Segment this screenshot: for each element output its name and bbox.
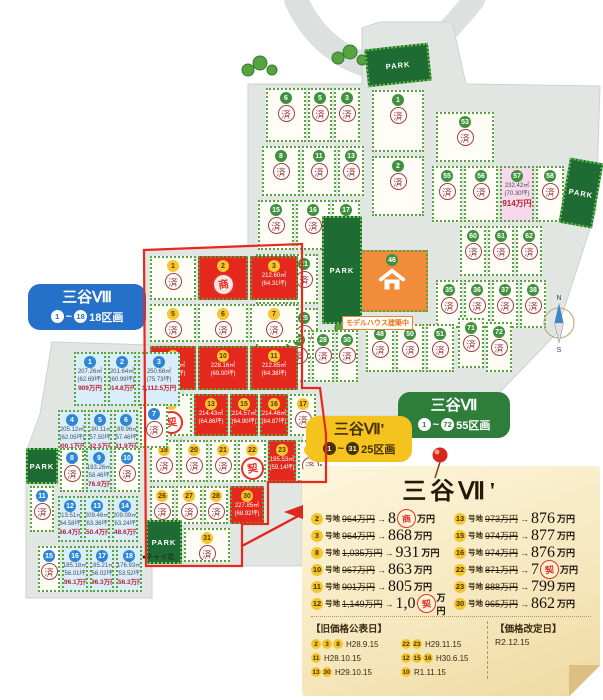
arrow-glyph: → <box>520 548 529 558</box>
lot-7-15: 15済 <box>258 200 294 250</box>
lot-number-badge: 23 <box>276 444 288 456</box>
lot-7-48: 48済 <box>366 324 394 372</box>
pub-dates-col2: 2223H29.11.15121516H30.6.1510R1.11.15 <box>401 637 487 679</box>
lot-area-text: 185.18㎡ <box>63 563 87 570</box>
lot-area-text: 214.46㎡ <box>262 411 286 418</box>
sold-marker: 済 <box>165 273 182 290</box>
new-price-unit: 万円 <box>422 546 440 559</box>
lot-7-50: 50済 <box>396 324 424 372</box>
lot-7-37: 37済 <box>492 280 518 328</box>
park-area: PARK <box>26 448 58 484</box>
range-separator: ~ <box>338 443 344 455</box>
old-price: 973万円 <box>485 512 518 525</box>
range-end-badge: 18 <box>74 310 87 323</box>
lot-area-text: (64.87坪) <box>262 419 287 426</box>
sold-marker: 済 <box>266 321 283 338</box>
lot-number-badge: 16 <box>69 550 81 562</box>
lot-7d-6: 6済 <box>198 304 248 342</box>
label-mitani7dash-title: 三谷Ⅶ' <box>314 421 404 440</box>
lot-8-13: 13209.46㎡(63.36坪)950.4万円 <box>84 496 110 542</box>
range-start-badge: 1 <box>418 418 431 431</box>
label-mitani7dash: 三谷Ⅶ' 1 ~ 31 25区画 <box>306 416 412 462</box>
lot-7-46: 46 <box>356 250 428 312</box>
lot-7d-3: 3212.60㎡(64.31坪) <box>250 256 298 300</box>
lot-number-badge: 11 <box>36 490 48 502</box>
sold-marker: 済 <box>165 321 182 338</box>
lot-number-badge: 35 <box>443 284 455 296</box>
new-price: 1,0 <box>396 596 416 612</box>
sold-marker: 済 <box>542 183 559 200</box>
range-start-badge: 1 <box>51 310 64 323</box>
lot-8-2: 2201.64㎡(60.99坪)914.8万円 <box>108 352 136 406</box>
lot-unit-label: 号地 <box>468 513 483 524</box>
lot-number-badge: 12 <box>311 598 323 610</box>
compass-icon: N S <box>544 295 574 354</box>
range-start-badge: 1 <box>323 442 336 455</box>
lot-7-56: 56済 <box>464 166 498 222</box>
pub-date-group: 2223H29.11.15 <box>401 637 487 651</box>
lot-7-28: 28済 <box>312 330 334 382</box>
lot-unit-label: 号地 <box>468 564 483 575</box>
lot-number-badge: 58 <box>544 170 556 182</box>
lot-number-badge: 13 <box>205 398 217 410</box>
sold-marker: 済 <box>343 163 360 180</box>
contract-stamp: 契 <box>239 455 266 482</box>
lot-number-badge: 10 <box>217 350 229 362</box>
lot-area-text: 214.43㎡ <box>199 411 223 418</box>
price-revision-row: 3号地964万円→868万円 <box>311 527 450 544</box>
contract-stamp: 契 <box>415 593 436 614</box>
lot-8-12: 12213.51㎡(64.58坪)966.4万円 <box>58 496 82 542</box>
arrow-glyph: → <box>520 565 529 575</box>
sold-marker: 済 <box>34 503 51 520</box>
new-price-unit: 万円 <box>414 529 432 542</box>
lot-price: 914万円 <box>502 199 531 209</box>
old-price-dates-section: 【旧価格公表日】 238H28.9.1511H28.10.151330H29.1… <box>311 621 487 679</box>
lot-number-badge: 15 <box>412 653 422 663</box>
arrow-glyph: → <box>520 531 529 541</box>
park-area: PARK <box>559 158 603 229</box>
lot-number-badge: 37 <box>499 284 511 296</box>
lot-number-badge: 3 <box>341 92 353 104</box>
lot-number-badge: 46 <box>386 254 398 266</box>
lot-number-badge: 25 <box>298 312 310 324</box>
sold-marker: 済 <box>278 105 295 122</box>
sold-marker: 済 <box>315 347 332 364</box>
sold-marker: 済 <box>64 465 81 482</box>
lot-number-badge: 15 <box>238 398 250 410</box>
price-rows-right: 13号地973万円→876万円15号地974万円→877万円16号地974万円→… <box>454 510 593 612</box>
pub-date-group: 10R1.11.15 <box>401 665 487 679</box>
lot-number-badge: 2 <box>311 639 321 649</box>
lot-area-text: (64.31坪) <box>261 281 286 288</box>
sold-marker: 済 <box>463 335 480 352</box>
old-price: 974万円 <box>485 529 518 542</box>
label-mitani8: 三谷Ⅷ 1 ~ 18 18区画 <box>28 284 146 330</box>
lot-7-51: 51済 <box>426 324 454 372</box>
lot-number-badge: 57 <box>511 170 523 182</box>
lot-area-text: (63.36坪) <box>85 521 110 528</box>
lot-7d-7: 7済 <box>250 304 298 342</box>
sold-marker: 済 <box>186 457 203 474</box>
lot-7d-30: 30227.85㎡(68.92坪) <box>230 486 264 524</box>
lot-number-badge: 28 <box>210 490 222 502</box>
lot-number-badge: 5 <box>167 308 179 320</box>
pub-date-value: H29.10.15 <box>335 668 372 677</box>
lot-8-8: 8済 <box>60 448 84 492</box>
lot-number-badge: 17 <box>340 204 352 216</box>
sold-marker: 済 <box>525 297 542 314</box>
lot-number-badge: 17 <box>96 550 108 562</box>
lot-7-38: 38済 <box>520 280 546 328</box>
price-revision-row: 11号地901万円→805万円 <box>311 578 450 595</box>
pub-date-value: H28.10.15 <box>324 654 361 663</box>
lot-number-badge: 2 <box>217 260 229 272</box>
lot-number-badge: 3 <box>268 260 280 272</box>
new-price: 931 <box>396 545 420 561</box>
pub-date-value: R1.11.15 <box>414 668 446 677</box>
lot-area-text: 212.85㎡ <box>262 363 286 370</box>
lot-7-11: 11済 <box>302 146 336 196</box>
lot-number-badge: 11 <box>311 653 321 663</box>
arrow-glyph: → <box>377 531 386 541</box>
lot-number-badge: 38 <box>527 284 539 296</box>
lot-area-text: (64.90坪) <box>232 419 257 426</box>
sold-marker: 済 <box>493 243 510 260</box>
lot-number-badge: 28 <box>317 334 329 346</box>
lot-number-badge: 31 <box>201 532 213 544</box>
lot-number-badge: 12 <box>401 653 411 663</box>
note-folded-corner <box>569 665 600 696</box>
old-price: 871万円 <box>485 563 518 576</box>
lot-area-text: 195.53㎡ <box>270 457 294 464</box>
lot-7-8: 8済 <box>262 146 300 196</box>
range-separator: ~ <box>433 419 439 431</box>
lot-price: 876.9万円 <box>86 481 112 489</box>
new-price-unit: 万円 <box>417 512 435 525</box>
lot-number-badge: 26 <box>156 490 168 502</box>
lot-8-17: 17185.21㎡(56.02坪)896.3万円 <box>90 546 114 592</box>
sold-marker: 済 <box>402 341 419 358</box>
lot-number-badge: 11 <box>268 350 280 362</box>
arrow-glyph: → <box>520 599 529 609</box>
contract-stamp: 商 <box>210 271 237 298</box>
lot-7d-16: 16214.46㎡(64.87坪) <box>260 394 288 436</box>
lot-number-badge: 9 <box>93 452 105 464</box>
lot-area-text: (56.01坪) <box>63 571 88 578</box>
new-price: 805 <box>388 579 412 595</box>
lot-number-badge: 11 <box>313 150 325 162</box>
arrow-glyph: → <box>377 582 386 592</box>
lot-number-badge: 8 <box>275 150 287 162</box>
lot-price: 1,112.5万円 <box>142 385 176 393</box>
lot-number-badge: 12 <box>64 500 76 512</box>
range-separator: ~ <box>66 311 72 323</box>
lot-number-badge: 7 <box>148 408 160 420</box>
sold-marker: 済 <box>268 217 285 234</box>
lot-number-badge: 8 <box>333 639 343 649</box>
sold-marker: 済 <box>390 173 407 190</box>
old-price: 1,149万円 <box>342 597 383 610</box>
lot-unit-label: 号地 <box>325 530 340 541</box>
lot-price: 914.8万円 <box>108 385 136 393</box>
old-price: 901万円 <box>342 580 375 593</box>
lot-area-text: 190.11㎡ <box>88 427 112 434</box>
lot-7-57: 57232.42㎡(70.30坪)914万円 <box>500 166 534 222</box>
label-mitani8-title: 三谷Ⅷ <box>36 289 138 308</box>
label-mitani7-title: 三谷Ⅶ <box>406 397 502 416</box>
lot-8-7: 7済 <box>140 404 168 448</box>
lot-number-badge: 6 <box>217 308 229 320</box>
price-revision-note: 三谷Ⅶ' 2号地964万円→8商万円3号地964万円→868万円8号地1,035… <box>302 466 600 696</box>
new-price-unit: 万円 <box>557 512 575 525</box>
price-revision-row: 2号地964万円→8商万円 <box>311 510 450 527</box>
lot-number-badge: 53 <box>459 116 471 128</box>
model-house-icon <box>377 267 407 297</box>
lot-price: 856.3万円 <box>116 579 142 587</box>
lot-8-18: 18176.93㎡(53.52坪)856.3万円 <box>116 546 142 592</box>
lot-number-badge: 8 <box>311 547 323 559</box>
lot-number-badge: 60 <box>467 230 479 242</box>
lot-number-badge: 2 <box>392 160 404 172</box>
sold-marker: 済 <box>432 341 449 358</box>
lot-number-badge: 2 <box>311 513 323 525</box>
lot-number-badge: 62 <box>523 230 535 242</box>
lot-number-badge: 30 <box>241 490 253 502</box>
lot-7d-26: 26済 <box>150 486 174 524</box>
lot-number-badge: 51 <box>434 328 446 340</box>
lot-7d-2: 2商 <box>198 256 248 300</box>
lot-number-badge: 61 <box>495 230 507 242</box>
lot-7d-28: 28済 <box>204 486 228 524</box>
sold-marker: 済 <box>296 271 313 288</box>
lot-number-badge: 23 <box>454 581 466 593</box>
lot-number-badge: 5 <box>314 92 326 104</box>
lot-7d-23: 23195.53㎡(59.14坪) <box>268 440 296 482</box>
price-revision-row: 12号地1,149万円→1,0契万円 <box>311 595 450 612</box>
lot-unit-label: 号地 <box>325 598 340 609</box>
lot-number-badge: 18 <box>123 550 135 562</box>
pub-dates-col1: 238H28.9.1511H28.10.151330H29.10.15 <box>311 637 397 679</box>
lot-number-badge: 21 <box>217 444 229 456</box>
lot-7-1: 1済 <box>372 90 424 152</box>
lot-number-badge: 55 <box>441 170 453 182</box>
lot-unit-label: 号地 <box>325 581 340 592</box>
sold-marker: 済 <box>273 163 290 180</box>
sold-marker: 済 <box>521 243 538 260</box>
lot-number-badge: 71 <box>465 322 477 334</box>
sold-marker: 済 <box>41 563 58 580</box>
lot-area-text: 213.51㎡ <box>58 513 82 520</box>
lot-7-5: 5済 <box>308 88 332 142</box>
price-revision-row: 10号地967万円→863万円 <box>311 561 450 578</box>
lot-8-11: 11済 <box>30 486 54 532</box>
subdivision-map-flyer: 6済5済3済8済11済13済15済16済17済20済21済23済25済1済2済5… <box>0 0 603 700</box>
sold-marker: 済 <box>215 457 232 474</box>
park-area: PARK <box>322 216 362 324</box>
lot-7d-13: 13214.43㎡(64.86坪) <box>194 394 228 436</box>
lot-area-text: 250.68㎡ <box>147 369 171 376</box>
new-price-unit: 万円 <box>560 563 578 576</box>
pub-date-group: 1330H29.10.15 <box>311 665 397 679</box>
lot-7-61: 61済 <box>488 226 514 276</box>
lot-unit-label: 号地 <box>468 530 483 541</box>
lot-unit-label: 号地 <box>325 513 340 524</box>
lot-7-13: 13済 <box>338 146 364 196</box>
lot-number-badge: 1 <box>84 356 96 368</box>
lot-number-badge: 8 <box>66 452 78 464</box>
lot-number-badge: 10 <box>311 564 323 576</box>
lot-area-text: (56.02坪) <box>90 571 114 578</box>
lot-7-30: 30済 <box>336 330 358 382</box>
pub-date-value: H30.6.15 <box>436 654 468 663</box>
sold-marker: 済 <box>311 163 328 180</box>
arrow-glyph: → <box>377 565 386 575</box>
lot-area-text: (60.99坪) <box>110 377 135 384</box>
lot-7d-27: 27済 <box>176 486 202 524</box>
lot-area-text: 232.42㎡ <box>505 183 529 190</box>
lot-7-62: 62済 <box>516 226 542 276</box>
sold-marker: 済 <box>339 105 356 122</box>
lot-number-badge: 13 <box>345 150 357 162</box>
lot-area-text: 193.26㎡ <box>87 465 111 472</box>
new-price: 7 <box>531 562 539 578</box>
revision-date-value: R2.12.15 <box>495 637 591 647</box>
lot-8-9: 9193.26㎡(58.46坪)876.9万円 <box>86 448 112 492</box>
lot-area-text: 176.93㎡ <box>117 563 141 570</box>
lot-area-text: (62.69坪) <box>77 377 102 384</box>
park-area: PARK <box>364 43 432 87</box>
price-revision-row: 15号地974万円→877万円 <box>454 527 593 544</box>
lot-number-badge: 13 <box>454 513 466 525</box>
lot-price: 966.4万円 <box>58 529 82 537</box>
lot-area-text: (70.30坪) <box>504 191 529 198</box>
lot-7d-22: 22契 <box>238 440 266 482</box>
contract-stamp: 商 <box>396 508 417 529</box>
price-revision-row: 16号地974万円→876万円 <box>454 544 593 561</box>
lot-number-badge: 3 <box>153 356 165 368</box>
lot-number-badge: 3 <box>322 639 332 649</box>
new-price-unit: 万円 <box>414 580 432 593</box>
lot-area-text: (63.24坪) <box>113 521 138 528</box>
contract-stamp: 契 <box>539 559 560 580</box>
lot-8-1: 1207.26㎡(62.69坪)909万円 <box>74 352 106 406</box>
pub-date-group: 11H28.10.15 <box>311 651 397 665</box>
lot-unit-label: 号地 <box>468 547 483 558</box>
lot-number-badge: 1 <box>167 260 179 272</box>
new-price-unit: 万円 <box>557 580 575 593</box>
lot-unit-label: 号地 <box>468 598 483 609</box>
old-price: 965万円 <box>485 597 518 610</box>
sold-marker: 済 <box>146 421 163 438</box>
new-price: 876 <box>531 511 555 527</box>
lot-7-2: 2済 <box>372 156 424 216</box>
lot-area-text: (57.50坪) <box>88 435 112 442</box>
lot-number-badge: 30 <box>341 334 353 346</box>
sold-marker: 済 <box>372 341 389 358</box>
old-price: 967万円 <box>342 563 375 576</box>
lot-area-text: 212.60㎡ <box>262 273 286 280</box>
lot-7-60: 60済 <box>460 226 486 276</box>
new-price: 799 <box>531 579 555 595</box>
lot-area-text: 205.12㎡ <box>60 427 84 434</box>
lot-area-text: (57.46坪) <box>114 435 138 442</box>
lot-7d-5: 5済 <box>150 304 196 342</box>
lot-number-badge: 4 <box>66 414 78 426</box>
sold-marker: 済 <box>208 503 225 520</box>
lot-number-badge: 16 <box>423 653 433 663</box>
lot-unit-label: 号地 <box>468 581 483 592</box>
price-revision-row: 30号地965万円→862万円 <box>454 595 593 612</box>
sold-marker: 済 <box>181 503 198 520</box>
lot-number-badge: 10 <box>121 452 133 464</box>
lot-number-badge: 36 <box>471 284 483 296</box>
sold-marker: 済 <box>457 129 474 146</box>
lot-area-text: 227.85㎡ <box>235 503 259 510</box>
lot-number-badge: 15 <box>454 530 466 542</box>
sold-marker: 済 <box>312 105 329 122</box>
new-price-unit: 万円 <box>557 529 575 542</box>
new-price: 876 <box>531 545 555 561</box>
lot-area-text: (64.38坪) <box>261 371 286 378</box>
lot-area-text: (69.00坪) <box>210 371 235 378</box>
compass-north-letter: N <box>556 295 561 302</box>
lot-number-badge: 22 <box>401 639 411 649</box>
lot-number-badge: 17 <box>297 398 309 410</box>
lot-number-badge: 13 <box>311 667 321 677</box>
new-price-unit: 万円 <box>437 591 450 617</box>
lot-area-text: (75.73坪) <box>146 377 171 384</box>
sold-marker: 済 <box>154 503 171 520</box>
sold-marker: 済 <box>199 545 216 562</box>
new-price: 8 <box>388 511 396 527</box>
sold-marker: 済 <box>491 339 508 356</box>
arrow-glyph: → <box>377 514 386 524</box>
old-price: 888万円 <box>485 580 518 593</box>
lot-number-badge: 30 <box>322 667 332 677</box>
new-price-unit: 万円 <box>557 597 575 610</box>
compass-south-letter: S <box>557 347 562 354</box>
lot-8-16: 16185.18㎡(56.01坪)896.1万円 <box>62 546 88 592</box>
price-revision-row: 23号地888万円→799万円 <box>454 578 593 595</box>
lot-number-badge: 6 <box>280 92 292 104</box>
new-price: 863 <box>388 562 412 578</box>
sold-marker: 済 <box>473 183 490 200</box>
sold-marker: 済 <box>441 297 458 314</box>
lot-number-badge: 16 <box>268 398 280 410</box>
arrow-glyph: → <box>385 548 394 558</box>
lot-number-badge: 5 <box>94 414 106 426</box>
price-revision-row: 8号地1,035万円→931万円 <box>311 544 450 561</box>
lot-price: 896.1万円 <box>62 579 88 587</box>
old-price: 964万円 <box>342 512 375 525</box>
old-price: 974万円 <box>485 546 518 559</box>
new-price: 877 <box>531 528 555 544</box>
lot-8-15: 15済 <box>38 546 60 592</box>
lot-number-badge: 22 <box>246 444 258 456</box>
pub-date-value: H28.9.15 <box>346 640 378 649</box>
lot-number-badge: 16 <box>307 204 319 216</box>
lot-count: 55区画 <box>456 417 490 433</box>
arrow-glyph: → <box>520 582 529 592</box>
lot-area-text: (58.46坪) <box>87 473 112 480</box>
sold-marker: 済 <box>390 107 407 124</box>
lot-7-6: 6済 <box>266 88 306 142</box>
lot-7d-10: 10228.16㎡(69.00坪) <box>198 346 248 390</box>
lot-7-53: 53済 <box>436 112 494 162</box>
new-price: 868 <box>388 528 412 544</box>
pub-date-group: 121516H30.6.15 <box>401 651 487 665</box>
